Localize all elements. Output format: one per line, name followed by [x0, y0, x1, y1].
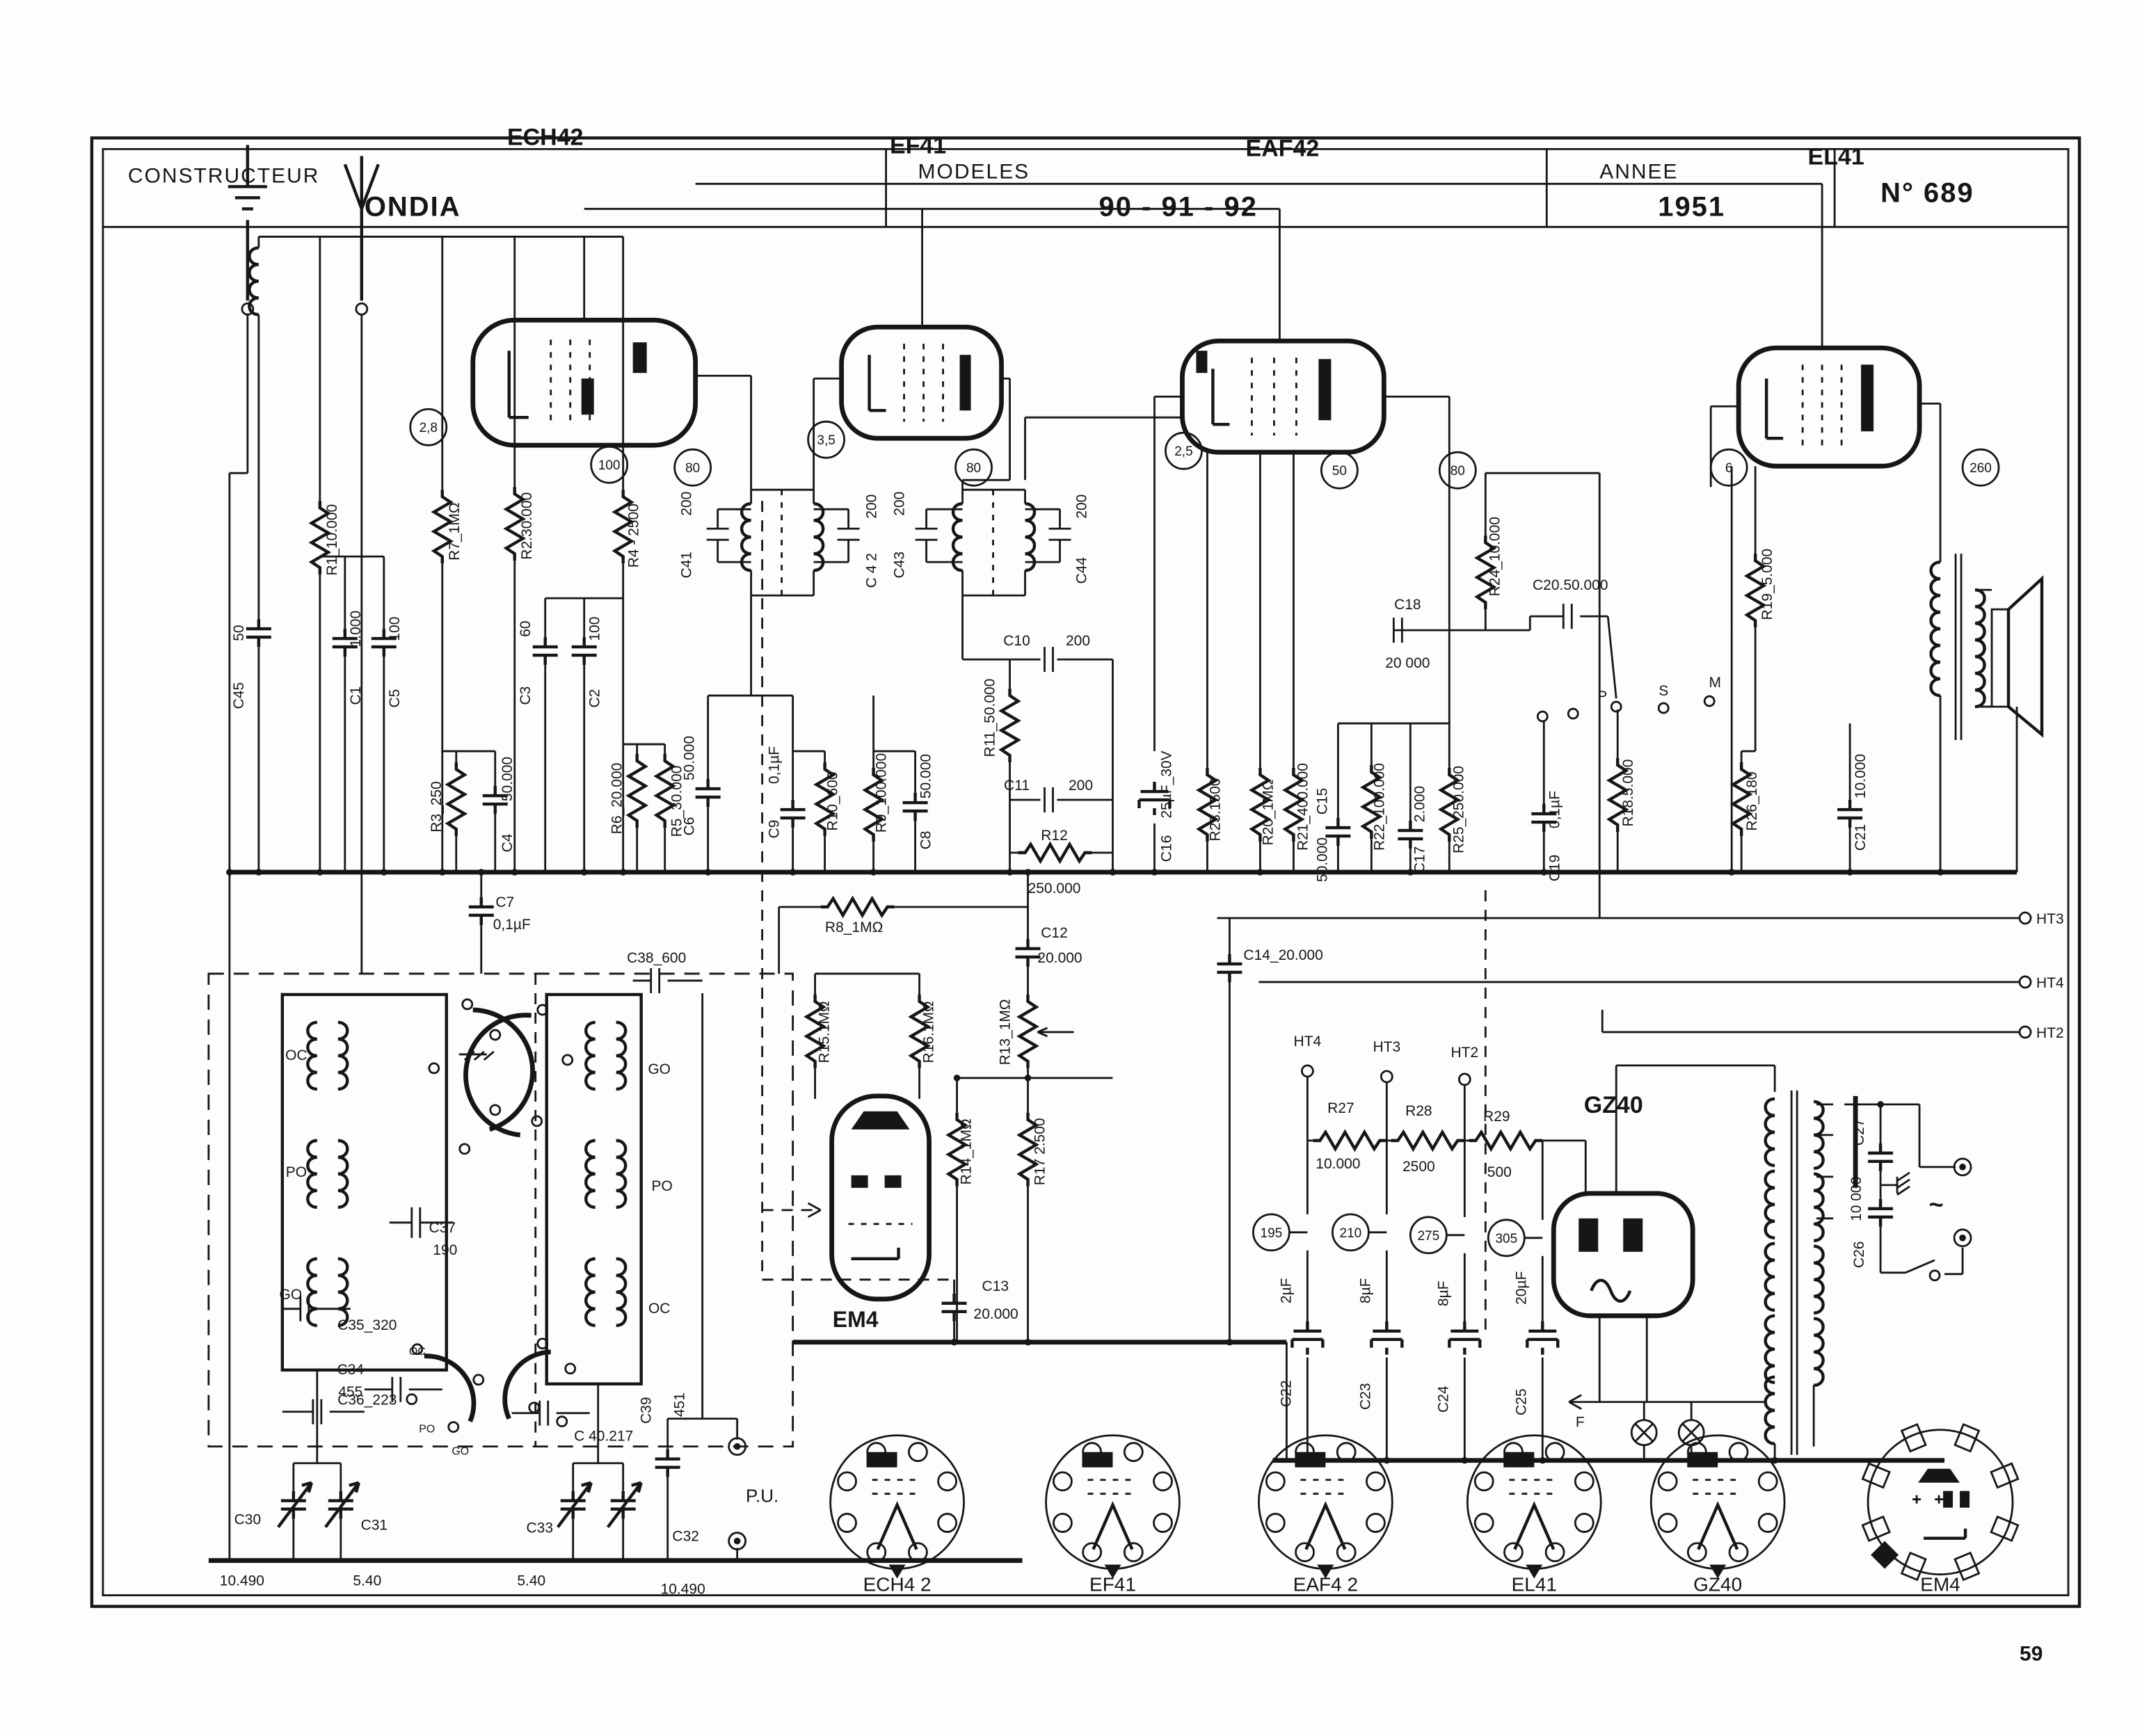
component-label: HT4	[2036, 975, 2064, 991]
component-label: C19	[1546, 855, 1562, 882]
component-label: 8µF	[1435, 1281, 1451, 1307]
component-label: R21_400.000	[1295, 763, 1311, 851]
component-label: 20µF	[1513, 1271, 1529, 1305]
component-label: C8	[918, 831, 934, 850]
component-label: 100	[587, 617, 603, 641]
component-label: C14_20.000	[1243, 947, 1322, 963]
component-label: R8_1MΩ	[825, 919, 883, 935]
tuner-shield-box	[209, 974, 793, 1447]
tube-sockets: ECH4 2EF41EAF4 2EL41GZ40EM4	[831, 1424, 2018, 1596]
component-label: PO	[652, 1178, 673, 1194]
component-label: GO	[451, 1446, 469, 1458]
component-label: R25_250.000	[1450, 766, 1466, 853]
title-block: CONSTRUCTEUR ONDIA MODELES 90 - 91 - 92 …	[128, 160, 1974, 222]
component-label: C43	[892, 552, 908, 578]
component-label: C37	[429, 1220, 456, 1236]
component-label: C30	[234, 1512, 262, 1528]
component-label: C9	[767, 820, 783, 839]
component-label: C 4 2	[864, 553, 880, 588]
component-label: C33	[526, 1520, 552, 1536]
component-label: C31	[361, 1518, 387, 1534]
component-label: 0,1µF	[493, 917, 531, 933]
component-label: C41	[679, 552, 695, 578]
component-label: ~	[1929, 1190, 1944, 1219]
component-label: C18	[1394, 597, 1421, 613]
component-label: C6	[682, 817, 698, 836]
component-label: 60	[518, 620, 534, 636]
component-label: R4 - 2500	[626, 504, 642, 568]
component-label: R6_20.000	[609, 763, 625, 835]
component-label: C21	[1853, 824, 1869, 851]
component-label: 50.000	[499, 757, 515, 801]
component-label: C3	[518, 686, 534, 705]
speaker-cone	[2008, 579, 2042, 734]
component-label: 25µF_30V	[1158, 750, 1174, 818]
component-label: OC	[409, 1346, 426, 1358]
component-label: R22_100.000	[1371, 763, 1387, 851]
component-label: 1.000	[348, 611, 364, 648]
component-label: R3_250	[429, 781, 445, 833]
component-label: GO	[648, 1061, 671, 1077]
component-label: C45	[231, 682, 247, 709]
component-label: C16	[1158, 835, 1174, 862]
component-label: C4	[499, 833, 515, 852]
component-label: R7_1MΩ	[447, 502, 463, 560]
voltage-value: 195	[1261, 1226, 1283, 1241]
component-label: C12	[1041, 925, 1068, 941]
component-label: C15	[1314, 788, 1330, 814]
component-label: C23	[1357, 1383, 1373, 1410]
page-number: 59	[2020, 1643, 2043, 1666]
component-label: R16.1MΩ	[921, 1001, 937, 1063]
voltage-value: 3,5	[817, 433, 835, 448]
component-label: 200	[892, 492, 908, 516]
component-label: 190	[433, 1242, 457, 1258]
component-label: R23.1500	[1207, 778, 1223, 842]
component-label: P	[1597, 689, 1607, 705]
component-label: GZ40	[1584, 1092, 1643, 1118]
voltage-value: 100	[598, 458, 621, 473]
socket-ECH42: ECH4 2	[831, 1436, 964, 1596]
component-label: 2500	[1402, 1159, 1435, 1175]
junction-dots	[226, 869, 1944, 1463]
component-label: PO	[286, 1164, 307, 1180]
component-label: EF41	[890, 132, 946, 159]
voltage-value: 50	[1332, 464, 1347, 479]
component-label: 200	[864, 495, 880, 519]
component-label: 2µF	[1278, 1278, 1294, 1304]
component-label: C7	[495, 894, 514, 910]
component-label: C10	[1003, 633, 1030, 649]
tube-EF41	[842, 327, 1002, 438]
component-label: EM4	[833, 1307, 879, 1332]
speaker-frame	[1992, 609, 2008, 707]
component-label: OC	[648, 1301, 670, 1317]
component-label: 50	[231, 625, 247, 641]
component-label: F	[1576, 1415, 1585, 1431]
component-label: R19_5.000	[1759, 549, 1775, 620]
component-label: R18.5.000	[1620, 759, 1636, 827]
component-label: R20_1MΩ	[1260, 780, 1276, 846]
component-label: C 40.217	[574, 1429, 633, 1445]
component-label: 250.000	[1028, 881, 1081, 897]
component-label: C2	[587, 689, 603, 708]
tube-EAF42	[1182, 341, 1384, 452]
component-label: R13_1MΩ	[998, 999, 1014, 1065]
component-label: R17 2.500	[1032, 1118, 1048, 1185]
component-label: R12	[1041, 828, 1068, 844]
component-label: 20.000	[1037, 950, 1082, 966]
component-label: 50.000	[918, 754, 934, 798]
component-label: C38_600	[627, 950, 686, 966]
annee-value: 1951	[1658, 191, 1725, 222]
component-label: HT3	[2036, 911, 2064, 927]
component-label: GO	[280, 1287, 303, 1303]
component-label: 200	[1069, 778, 1093, 794]
component-label: HT3	[1373, 1039, 1401, 1055]
component-label: C5	[387, 689, 403, 708]
voltage-value: 275	[1417, 1229, 1439, 1244]
component-label: HT2	[2036, 1025, 2064, 1041]
voltage-value: 80	[1450, 464, 1465, 479]
component-label: R24_10.000	[1487, 517, 1503, 596]
schematic-page: { "header": { "constructeur_label": "CON…	[0, 0, 2142, 1736]
component-label: R28	[1405, 1103, 1432, 1119]
antenna-icon	[345, 156, 378, 314]
voltage-value: 80	[685, 461, 700, 476]
socket-EF41: EF41	[1046, 1436, 1180, 1596]
component-label: PO	[419, 1424, 435, 1436]
component-label: 0,1µF	[1546, 791, 1562, 828]
component-label: 500	[1487, 1164, 1512, 1180]
component-label: 200	[1073, 495, 1089, 519]
voltage-value: 2,8	[419, 421, 438, 435]
component-label: 5.40	[517, 1573, 545, 1589]
brand-name: ONDIA	[365, 191, 461, 222]
component-label: C24	[1435, 1385, 1451, 1413]
component-label: R11_50.000	[982, 679, 998, 757]
component-label: R27	[1327, 1100, 1354, 1116]
socket-EM4: EM4	[1862, 1424, 2017, 1596]
component-label: R29	[1483, 1109, 1510, 1125]
band-switch-blades	[424, 1010, 551, 1422]
component-label: R1_10.000	[324, 504, 340, 576]
component-labels: ECH42EF41EAF42EL41GZ40EM450C45R1_10.0001…	[220, 124, 2064, 1597]
component-label: 10.490	[661, 1582, 705, 1598]
tube-GZ40	[1553, 1193, 1693, 1316]
component-label: R15.1MΩ	[817, 1001, 833, 1063]
component-label: 10.490	[220, 1573, 264, 1589]
issue-number: N° 689	[1880, 177, 1974, 208]
component-label: 50.000	[1314, 837, 1330, 882]
component-label: C32	[672, 1529, 699, 1545]
socket-label: GZ40	[1693, 1574, 1742, 1596]
tube-EM4	[832, 1096, 929, 1299]
component-label: 8µF	[1357, 1278, 1373, 1304]
pilot-lamps	[1631, 1420, 1704, 1445]
component-label: C20.50.000	[1533, 577, 1608, 593]
component-label: 200	[1066, 633, 1090, 649]
component-label: 10.000	[1853, 754, 1869, 798]
component-label: EL41	[1808, 143, 1864, 170]
component-label: C13	[982, 1278, 1009, 1294]
voltage-value: 80	[966, 461, 981, 476]
socket-label: EAF4 2	[1293, 1574, 1358, 1596]
component-label: C35_320	[337, 1317, 397, 1333]
socket-label: EL41	[1512, 1574, 1557, 1596]
component-label: C11	[1004, 778, 1030, 794]
component-label: C22	[1278, 1381, 1294, 1408]
modeles-value: 90 - 91 - 92	[1098, 191, 1257, 222]
schematic-canvas: CONSTRUCTEUR ONDIA MODELES 90 - 91 - 92 …	[0, 0, 2142, 1736]
wiring-detector-stage	[1154, 396, 2020, 1032]
component-label: C1	[348, 686, 364, 705]
component-label: HT4	[1294, 1034, 1322, 1050]
voltage-value: 6	[1725, 461, 1733, 476]
component-label: HT2	[1450, 1045, 1478, 1061]
component-label: R2.30.000	[519, 492, 535, 560]
tube-ECH42	[473, 320, 696, 445]
component-label: C39	[639, 1397, 655, 1423]
voltage-value: 2,5	[1174, 444, 1192, 459]
component-label: EAF42	[1246, 135, 1320, 161]
component-label: 2.000	[1412, 786, 1428, 823]
component-label: P.U.	[746, 1486, 778, 1506]
component-label: 455	[338, 1384, 362, 1400]
modeles-label: MODELES	[918, 160, 1030, 183]
component-label: 10 000	[1848, 1177, 1864, 1221]
wiring-if-stages	[696, 376, 1183, 872]
component-label: C34	[337, 1362, 365, 1378]
component-label: 20 000	[1385, 655, 1430, 671]
component-label: 20.000	[974, 1306, 1018, 1322]
component-label: 10.000	[1316, 1156, 1360, 1172]
socket-label: EM4	[1920, 1574, 1960, 1596]
component-label: R10_600	[825, 771, 841, 830]
component-label: ECH42	[507, 124, 584, 150]
component-label: 451	[672, 1392, 688, 1417]
component-label: R26_180	[1744, 771, 1760, 830]
component-label: C27	[1851, 1119, 1867, 1146]
voltage-value: 305	[1495, 1232, 1517, 1246]
annee-label: ANNEE	[1599, 160, 1678, 183]
socket-label: EF41	[1089, 1574, 1136, 1596]
component-label: R9_100.000	[874, 753, 890, 833]
component-label: C44	[1073, 557, 1089, 584]
socket-label: ECH4 2	[863, 1574, 932, 1596]
component-label: C25	[1513, 1389, 1529, 1415]
component-label: 5.40	[353, 1573, 381, 1589]
tube-EL41	[1739, 348, 1919, 466]
component-label: 200	[679, 492, 695, 516]
component-label: 100	[387, 617, 403, 641]
voltage-value: 210	[1340, 1226, 1362, 1241]
constructeur-label: CONSTRUCTEUR	[128, 164, 320, 187]
component-label: C17	[1412, 846, 1428, 874]
voltage-value: 260	[1969, 461, 1992, 476]
component-label: M	[1709, 675, 1720, 691]
component-label: C26	[1851, 1241, 1867, 1269]
component-label: 0,1µF	[767, 746, 783, 784]
component-label: S	[1659, 683, 1668, 699]
component-label: OC	[285, 1047, 307, 1063]
component-label: R14_1MΩ	[959, 1118, 975, 1184]
component-label: 50.000	[682, 736, 698, 780]
